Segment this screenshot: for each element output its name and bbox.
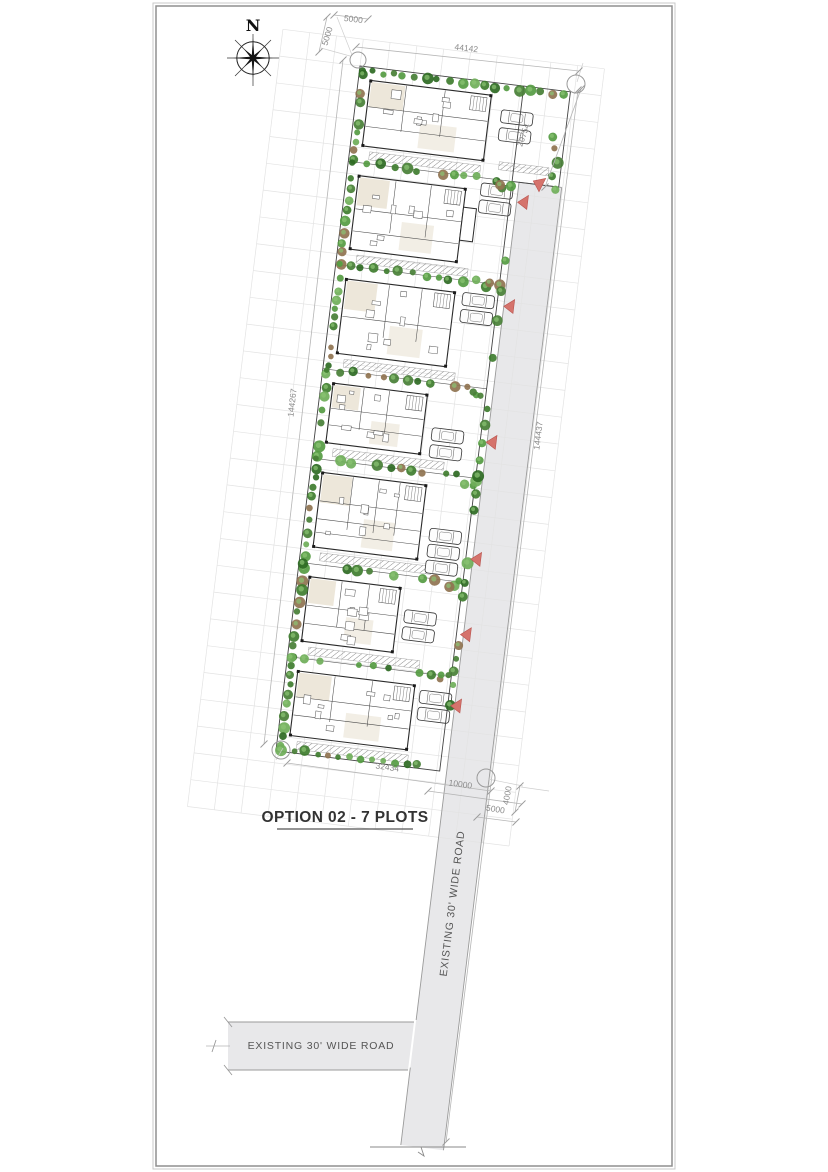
drawing-sheet: EXISTING 30' WIDE ROAD EXISTING 30' WIDE… bbox=[0, 0, 828, 1172]
site-plan-drawing: EXISTING 30' WIDE ROAD EXISTING 30' WIDE… bbox=[0, 0, 828, 1172]
north-label: N bbox=[246, 16, 261, 35]
page-title: OPTION 02 - 7 PLOTS bbox=[262, 809, 429, 826]
horizontal-road-label: EXISTING 30' WIDE ROAD bbox=[248, 1040, 395, 1052]
horizontal-road: EXISTING 30' WIDE ROAD bbox=[206, 1017, 414, 1075]
